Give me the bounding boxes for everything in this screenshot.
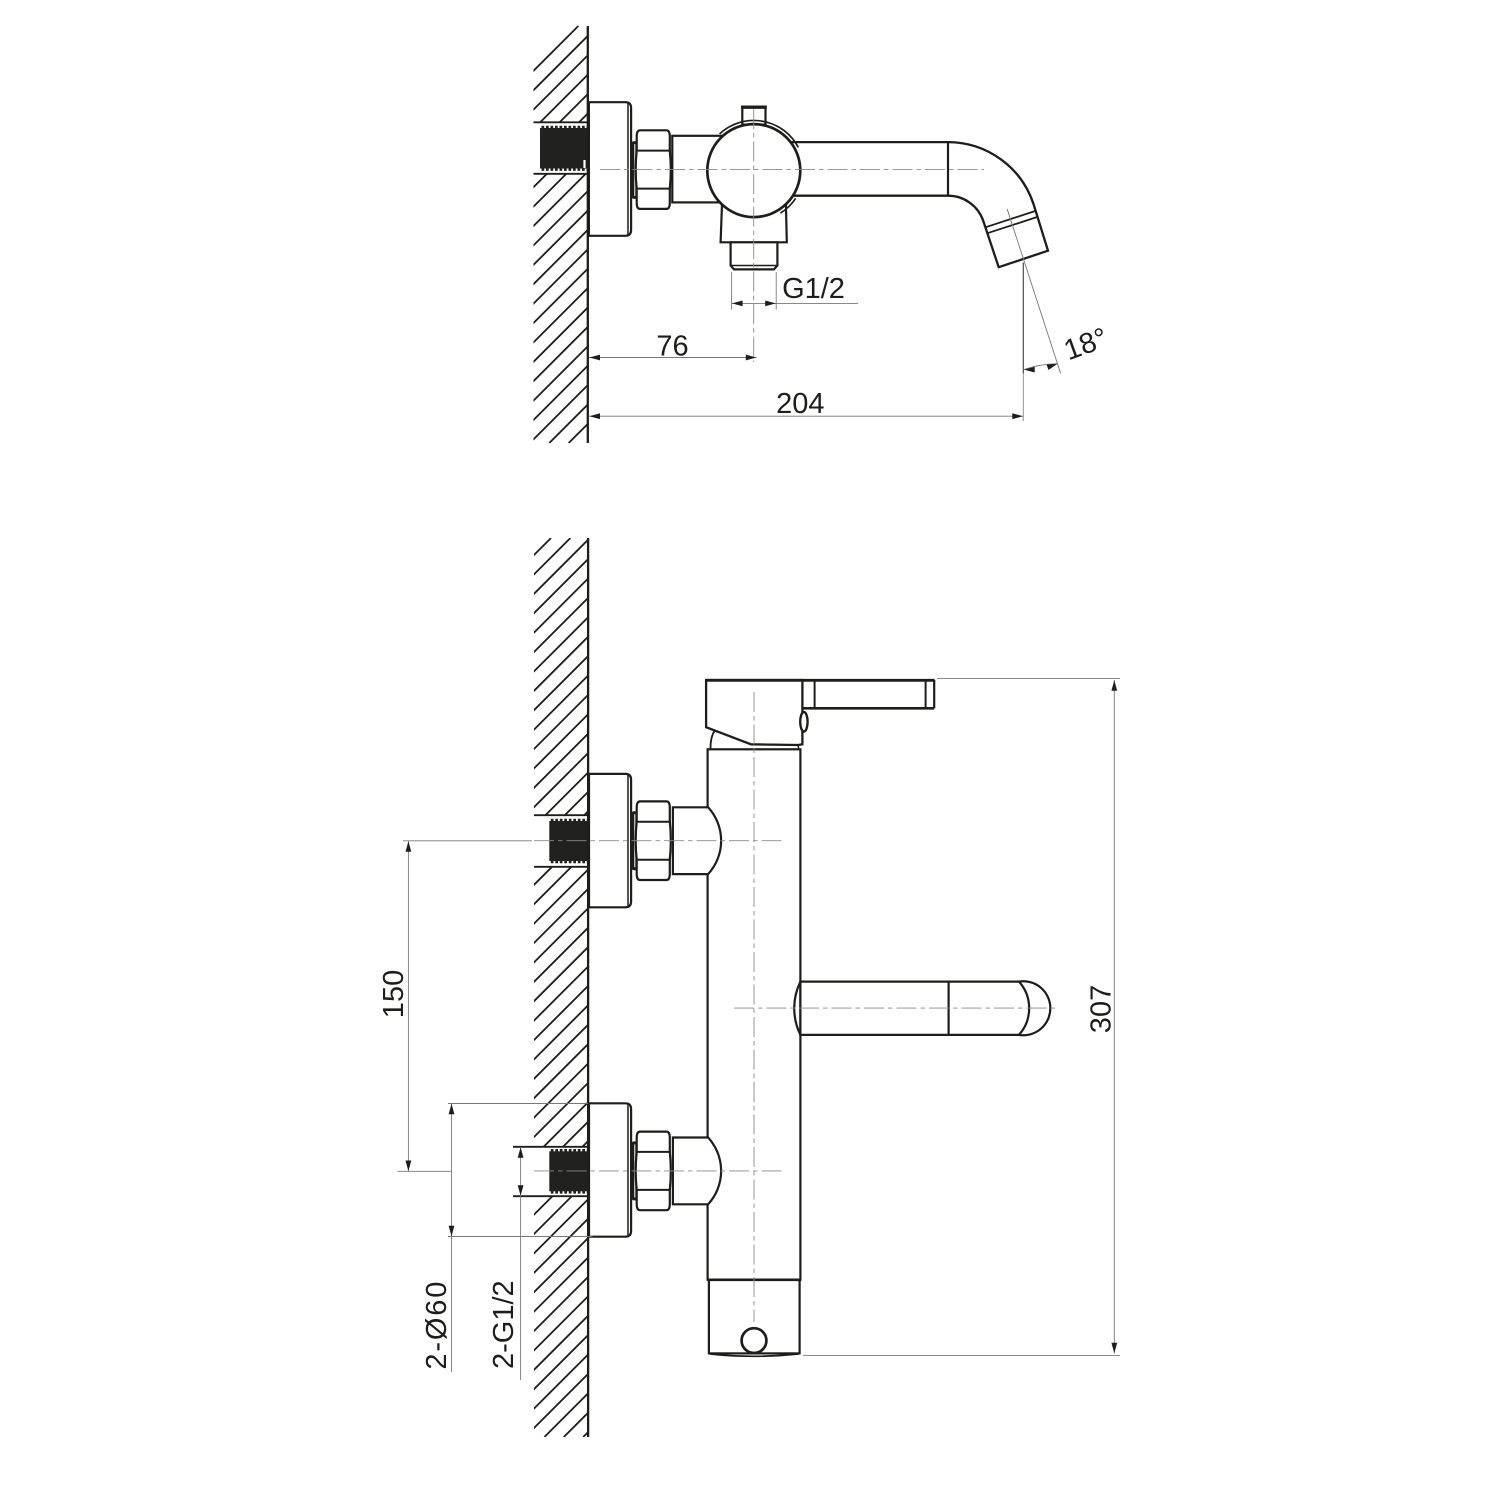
svg-text:2-G1/2: 2-G1/2 — [488, 1280, 520, 1369]
svg-text:2-Ø60: 2-Ø60 — [421, 1282, 453, 1370]
svg-text:150: 150 — [378, 970, 410, 1018]
svg-text:76: 76 — [656, 330, 688, 362]
svg-text:204: 204 — [776, 388, 824, 420]
svg-text:307: 307 — [1086, 985, 1118, 1033]
svg-text:G1/2: G1/2 — [782, 273, 845, 305]
